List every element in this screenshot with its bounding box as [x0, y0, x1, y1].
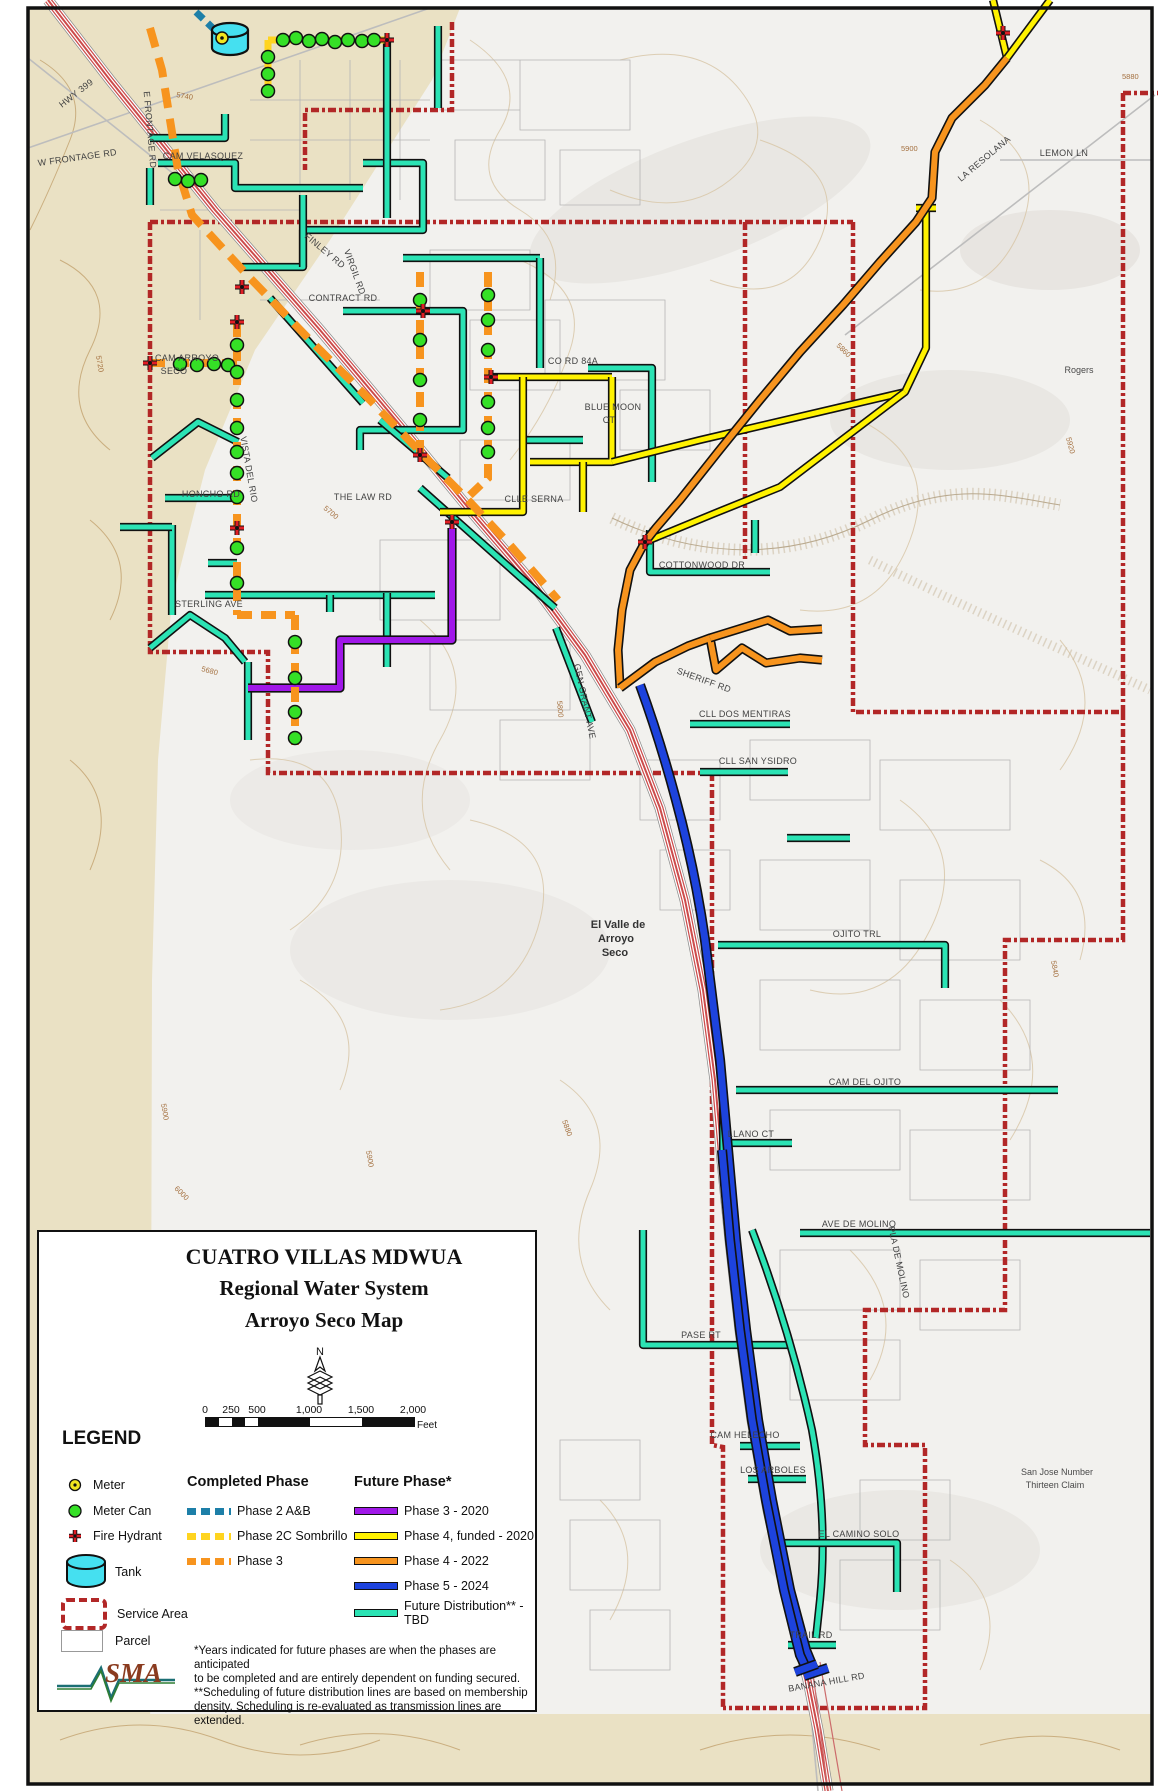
- legend-label: Meter: [93, 1478, 125, 1492]
- contour-label: 5900: [901, 144, 918, 153]
- legend-item-phase3-2020: Phase 3 - 2020: [354, 1502, 489, 1520]
- phase2c-swatch: [187, 1533, 231, 1540]
- meter-icon: [67, 1477, 83, 1493]
- footnote-line: to be completed and are entirely depende…: [194, 1672, 529, 1686]
- legend-item-phase4-funded: Phase 4, funded - 2020: [354, 1527, 534, 1545]
- road-label: OJITO TRL: [833, 929, 881, 939]
- legend-label: Phase 5 - 2024: [404, 1579, 489, 1593]
- map-screenshot: HWY 399 W FRONTAGE RD E FRONTAGE RD CAM …: [0, 0, 1160, 1791]
- parcel-icon: [61, 1630, 103, 1652]
- legend-label: Phase 2 A&B: [237, 1504, 311, 1518]
- title-legend-box: CUATRO VILLAS MDWUA Regional Water Syste…: [37, 1230, 537, 1712]
- road-label: CAM DEL OJITO: [829, 1077, 901, 1087]
- legend-label: Tank: [115, 1565, 141, 1579]
- road-label: EL CAMINO SOLO: [819, 1529, 900, 1539]
- legend-item-phase2ab: Phase 2 A&B: [187, 1502, 311, 1520]
- legend-label: Parcel: [115, 1634, 150, 1648]
- road-label: THE LAW RD: [334, 492, 392, 502]
- road-label: AVE DE MOLINO: [822, 1219, 896, 1229]
- road-label: CLL SAN YSIDRO: [719, 756, 797, 766]
- scale-tick: 500: [248, 1404, 266, 1416]
- road-label: CAM ARROYO: [155, 353, 219, 363]
- road-label: LLANO CT: [728, 1129, 775, 1139]
- place-label: Seco: [602, 947, 629, 959]
- legend-item-phase2c: Phase 2C Sombrillo: [187, 1527, 347, 1545]
- road-label: COTTONWOOD DR: [659, 560, 745, 570]
- phase3-swatch: [187, 1558, 231, 1565]
- place-label: Rogers: [1064, 365, 1094, 375]
- legend-label: Future Distribution** - TBD: [404, 1599, 535, 1627]
- legend-heading: LEGEND: [62, 1428, 141, 1450]
- future-phase-heading: Future Phase*: [354, 1474, 452, 1490]
- north-arrow: N: [297, 1344, 343, 1406]
- footnotes: *Years indicated for future phases are w…: [194, 1644, 529, 1728]
- meter-can-icon: [67, 1503, 83, 1519]
- road-label: CAM HELECHO: [710, 1430, 779, 1440]
- legend-label: Phase 3: [237, 1554, 283, 1568]
- contour-label: 5880: [1122, 72, 1139, 81]
- tank-icon: [61, 1550, 111, 1594]
- legend-label: Phase 3 - 2020: [404, 1504, 489, 1518]
- service-area-icon: [61, 1598, 107, 1630]
- phase2ab-swatch: [187, 1508, 231, 1515]
- scale-tick: 1,500: [348, 1404, 374, 1416]
- road-label: BLUE MOON: [585, 402, 642, 412]
- legend-item-phase4-2022: Phase 4 - 2022: [354, 1552, 489, 1570]
- road-label: STERLING AVE: [175, 599, 243, 609]
- phase3-2020-swatch: [354, 1507, 398, 1515]
- scale-tick: 2,000: [400, 1404, 426, 1416]
- fire-hydrant-icon: [67, 1528, 83, 1544]
- road-label: CO RD 84A: [548, 356, 598, 366]
- legend-label: Fire Hydrant: [93, 1529, 162, 1543]
- legend-label: Phase 4 - 2022: [404, 1554, 489, 1568]
- map-title-line2: Regional Water System: [114, 1276, 534, 1301]
- place-label: San Jose Number: [1021, 1467, 1093, 1477]
- scale-unit: Feet: [417, 1420, 437, 1431]
- scale-bar: 0 250 500 1,000 1,500 2,000 Feet: [199, 1404, 469, 1434]
- phase4-funded-swatch: [354, 1532, 398, 1540]
- sma-logo: SMA: [53, 1656, 183, 1708]
- phase4-2022-swatch: [354, 1557, 398, 1565]
- legend-item-phase5-2024: Phase 5 - 2024: [354, 1577, 489, 1595]
- legend-item-phase3: Phase 3: [187, 1552, 283, 1570]
- legend-item-fire-hydrant: Fire Hydrant: [67, 1527, 162, 1545]
- scale-tick: 1,000: [296, 1404, 322, 1416]
- footnote-line: **Scheduling of future distribution line…: [194, 1686, 529, 1700]
- place-label: Arroyo: [598, 933, 634, 945]
- future-distribution-swatch: [354, 1609, 398, 1617]
- meter-symbol: [216, 32, 228, 44]
- scale-tick: 250: [222, 1404, 240, 1416]
- road-label: LEMON LN: [1040, 148, 1088, 158]
- scale-tick: 0: [202, 1404, 208, 1416]
- legend-item-future-distribution: Future Distribution** - TBD: [354, 1604, 535, 1622]
- legend-label: Service Area: [117, 1607, 188, 1621]
- map-title-line1: CUATRO VILLAS MDWUA: [114, 1244, 534, 1270]
- road-label: TRAIL RD: [789, 1630, 832, 1640]
- road-label: HONCHO RD: [182, 489, 240, 499]
- footnote-line: *Years indicated for future phases are w…: [194, 1644, 529, 1672]
- legend-item-tank: Tank: [61, 1550, 141, 1594]
- phase5-2024-swatch: [354, 1582, 398, 1590]
- footnote-line: density. Scheduling is re-evaluated as t…: [194, 1700, 529, 1728]
- scale-bar-segments: [205, 1417, 415, 1427]
- legend-item-meter: Meter: [67, 1476, 125, 1494]
- contour-label: 5800: [555, 700, 565, 717]
- road-label: PASE RT: [681, 1330, 721, 1340]
- sma-logo-text: SMA: [105, 1658, 162, 1688]
- completed-phase-heading: Completed Phase: [187, 1474, 309, 1490]
- legend-item-parcel: Parcel: [61, 1628, 150, 1654]
- legend-label: Phase 2C Sombrillo: [237, 1529, 347, 1543]
- road-label: LOS ARBOLES: [740, 1465, 806, 1475]
- map-title-line3: Arroyo Seco Map: [114, 1308, 534, 1333]
- road-label: CLLE SERNA: [504, 494, 563, 504]
- legend-label: Meter Can: [93, 1504, 151, 1518]
- road-label: CONTRACT RD: [309, 293, 378, 303]
- legend-item-service-area: Service Area: [61, 1598, 188, 1630]
- legend-label: Phase 4, funded - 2020: [404, 1529, 534, 1543]
- place-label: Thirteen Claim: [1026, 1480, 1085, 1490]
- road-label: CAM VELASQUEZ: [163, 151, 244, 161]
- road-label: SECO: [161, 366, 188, 376]
- legend-item-meter-can: Meter Can: [67, 1502, 151, 1520]
- road-label: CT: [603, 415, 616, 425]
- road-label: CLL DOS MENTIRAS: [699, 709, 791, 719]
- place-label: El Valle de: [591, 919, 645, 931]
